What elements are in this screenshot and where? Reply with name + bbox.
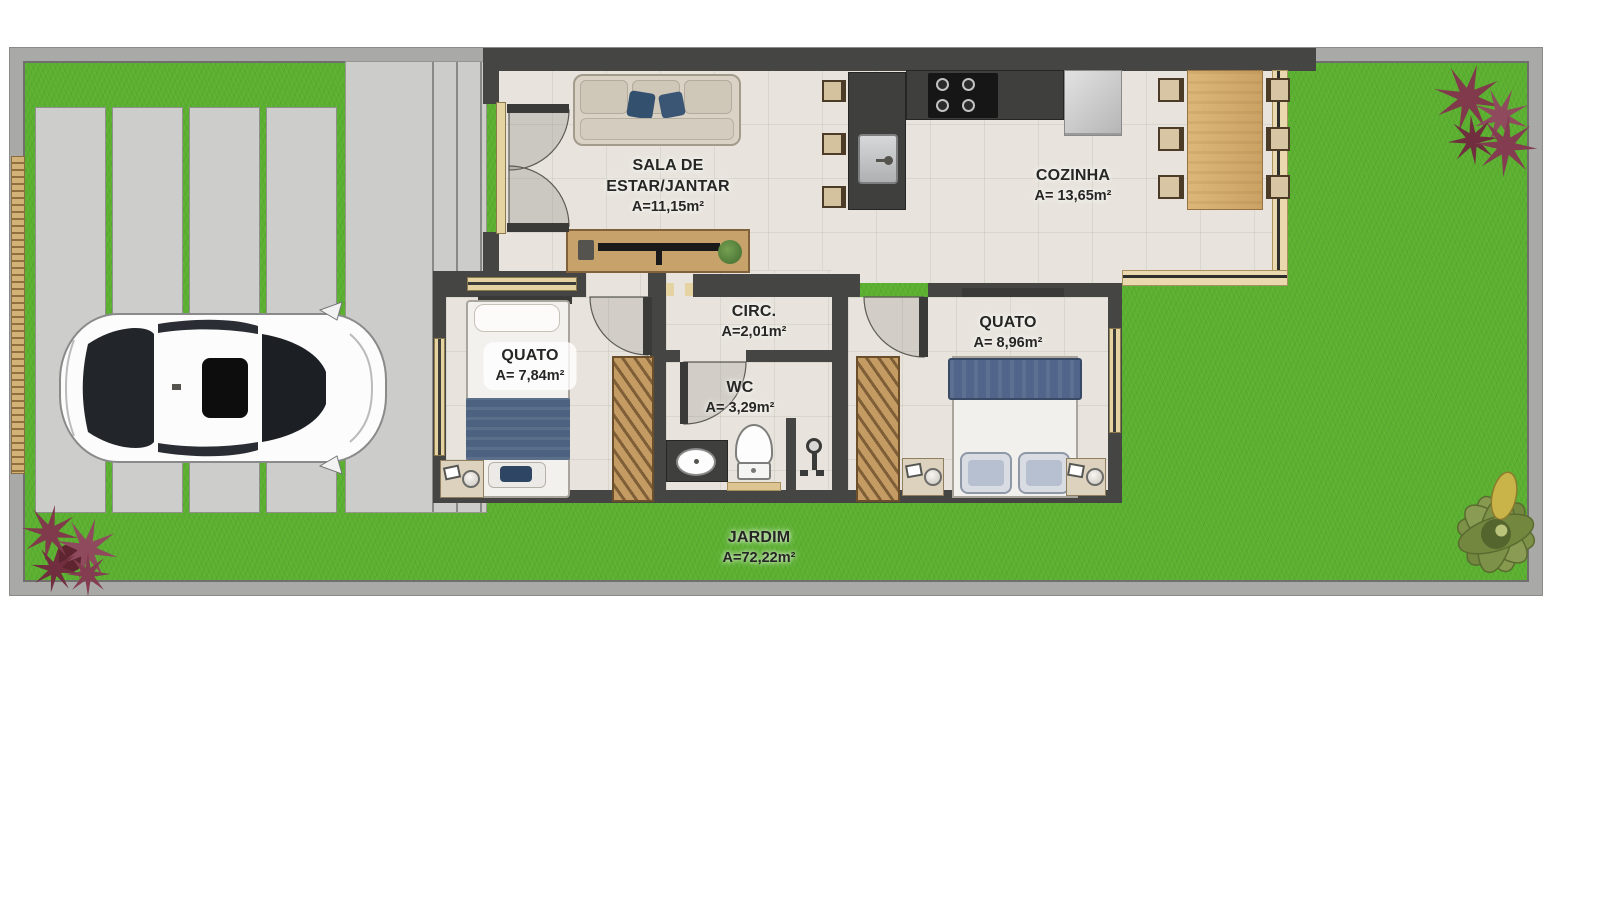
sofa-pillow: [626, 90, 656, 120]
tv-stand: [656, 251, 662, 265]
burner: [936, 99, 949, 112]
faucet: [884, 156, 893, 165]
cozinha-name: COZINHA: [1035, 166, 1112, 187]
bedroom1-left-window: [434, 338, 445, 456]
driveway-pad: [266, 107, 337, 513]
bed-pillow-inner: [1026, 460, 1062, 486]
shower-control: [816, 470, 824, 476]
quarto2-area: A= 8,96m²: [974, 334, 1043, 353]
front-gate: [11, 156, 25, 474]
sofa-seat: [580, 118, 734, 140]
bedroom1-top-window: [467, 277, 577, 291]
dining-chair: [1266, 127, 1290, 151]
room-label-circ: CIRC. A=2,01m²: [722, 302, 787, 342]
bedroom1-door-opening: [586, 271, 648, 297]
driveway-pad: [189, 107, 260, 513]
dining-chair: [1158, 175, 1184, 199]
circulation-entry-jamb: [666, 283, 674, 296]
room-label-quarto2: QUATO A= 8,96m²: [974, 313, 1043, 353]
sala-name-line2: ESTAR/JANTAR: [606, 177, 730, 198]
circ-name: CIRC.: [722, 302, 787, 323]
faucet-arm: [876, 159, 885, 162]
dining-chair: [1266, 175, 1290, 199]
bed-pillow: [474, 304, 560, 332]
bed-pillow-inner: [968, 460, 1004, 486]
sink-drain: [694, 459, 699, 464]
entry-door-frame: [496, 102, 506, 234]
bed-foot-pillow-accent: [500, 466, 532, 482]
dining-chair: [1158, 78, 1184, 102]
wardrobe: [856, 356, 900, 502]
dining-table: [1187, 70, 1263, 210]
room-label-wc: WC A= 3,29m²: [706, 378, 775, 418]
shower-divider-wall: [786, 418, 796, 490]
wc-top-wall-left: [666, 350, 680, 362]
island-stool: [822, 186, 846, 208]
dining-chair: [1158, 127, 1184, 151]
burner: [962, 78, 975, 91]
toilet-flush-button: [751, 468, 756, 473]
island-stool: [822, 80, 846, 102]
tv: [598, 243, 720, 251]
tv-rack-decor: [578, 240, 594, 260]
quarto1-name: QUATO: [496, 346, 565, 367]
burner: [936, 78, 949, 91]
cozinha-area: A= 13,65m²: [1035, 187, 1112, 206]
decor-plant: [718, 240, 742, 264]
bed-blanket: [466, 398, 570, 460]
living-left-wall-upper: [483, 71, 499, 104]
lamp: [462, 470, 480, 488]
circulation-entry-jamb: [685, 283, 693, 296]
room-label-quarto1: QUATO A= 7,84m²: [484, 342, 577, 390]
wc-top-wall-right: [746, 350, 832, 362]
lamp: [1086, 468, 1104, 486]
room-label-cozinha: COZINHA A= 13,65m²: [1035, 166, 1112, 206]
jardim-name: JARDIM: [723, 528, 796, 549]
refrigerator: [1064, 70, 1122, 136]
photo-frame: [1067, 463, 1085, 479]
sofa-pillow: [658, 91, 686, 119]
wc-area: A= 3,29m²: [706, 399, 775, 418]
photo-frame: [905, 463, 923, 479]
driveway-pad: [112, 107, 183, 513]
bedroom2-right-window: [1109, 328, 1121, 433]
quarto2-name: QUATO: [974, 313, 1043, 334]
sofa-cushion: [580, 80, 628, 114]
dining-chair: [1266, 78, 1290, 102]
lamp: [924, 468, 942, 486]
house-top-wall: [483, 48, 1316, 71]
sofa-cushion: [684, 80, 732, 114]
bedroom2-headboard-beam: [962, 288, 1064, 297]
kitchen-glass-wall-bottom: [1122, 270, 1288, 286]
bath-mat: [727, 482, 781, 491]
island-stool: [822, 133, 846, 155]
sala-area: A=11,15m²: [606, 197, 730, 216]
quarto1-area: A= 7,84m²: [496, 367, 565, 386]
room-label-jardim: JARDIM A=72,22m²: [723, 528, 796, 568]
shower-pipe: [812, 452, 817, 470]
sala-name-line1: SALA DE: [606, 156, 730, 177]
burner: [962, 99, 975, 112]
shower-control: [800, 470, 808, 476]
jardim-area: A=72,22m²: [723, 549, 796, 568]
room-label-sala: SALA DE ESTAR/JANTAR A=11,15m²: [606, 156, 730, 216]
wardrobe: [612, 356, 654, 502]
circ-area: A=2,01m²: [722, 323, 787, 342]
bed-duvet: [948, 358, 1082, 400]
driveway-pad: [35, 107, 106, 513]
floor-plan-canvas: SALA DE ESTAR/JANTAR A=11,15m² COZINHA A…: [0, 0, 1600, 900]
wc-name: WC: [706, 378, 775, 399]
wc-bedroom2-wall: [832, 283, 848, 503]
